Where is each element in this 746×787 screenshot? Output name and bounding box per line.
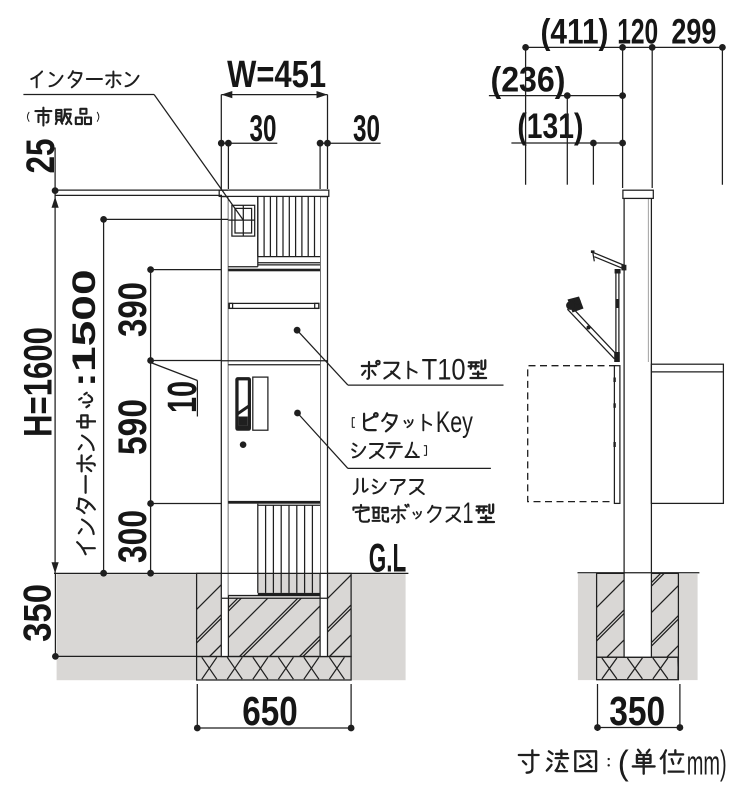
- svg-text:(411): (411): [541, 13, 609, 52]
- svg-text:W=451: W=451: [227, 54, 326, 96]
- svg-text::1500: :1500: [66, 269, 102, 387]
- svg-text:30: 30: [353, 108, 380, 149]
- svg-text:590: 590: [111, 399, 155, 455]
- svg-text:10: 10: [159, 381, 205, 413]
- svg-text:(236): (236): [491, 61, 566, 100]
- svg-text:mm): mm): [687, 745, 727, 783]
- svg-text:H=1600: H=1600: [17, 327, 61, 437]
- svg-text:T10: T10: [422, 354, 466, 387]
- svg-text:350: 350: [609, 688, 665, 734]
- svg-text:120: 120: [617, 13, 658, 52]
- svg-text:(: (: [618, 745, 630, 783]
- svg-text:350: 350: [17, 584, 60, 642]
- svg-text:(131): (131): [517, 107, 583, 146]
- svg-text:390: 390: [111, 282, 155, 337]
- svg-text:300: 300: [111, 510, 155, 563]
- svg-text:25: 25: [19, 139, 63, 174]
- svg-text:30: 30: [250, 108, 277, 149]
- svg-text:650: 650: [242, 688, 298, 734]
- svg-text:Key: Key: [436, 406, 473, 439]
- svg-text:1: 1: [463, 497, 474, 530]
- svg-text:299: 299: [671, 13, 716, 52]
- svg-text:G.L: G.L: [369, 536, 407, 580]
